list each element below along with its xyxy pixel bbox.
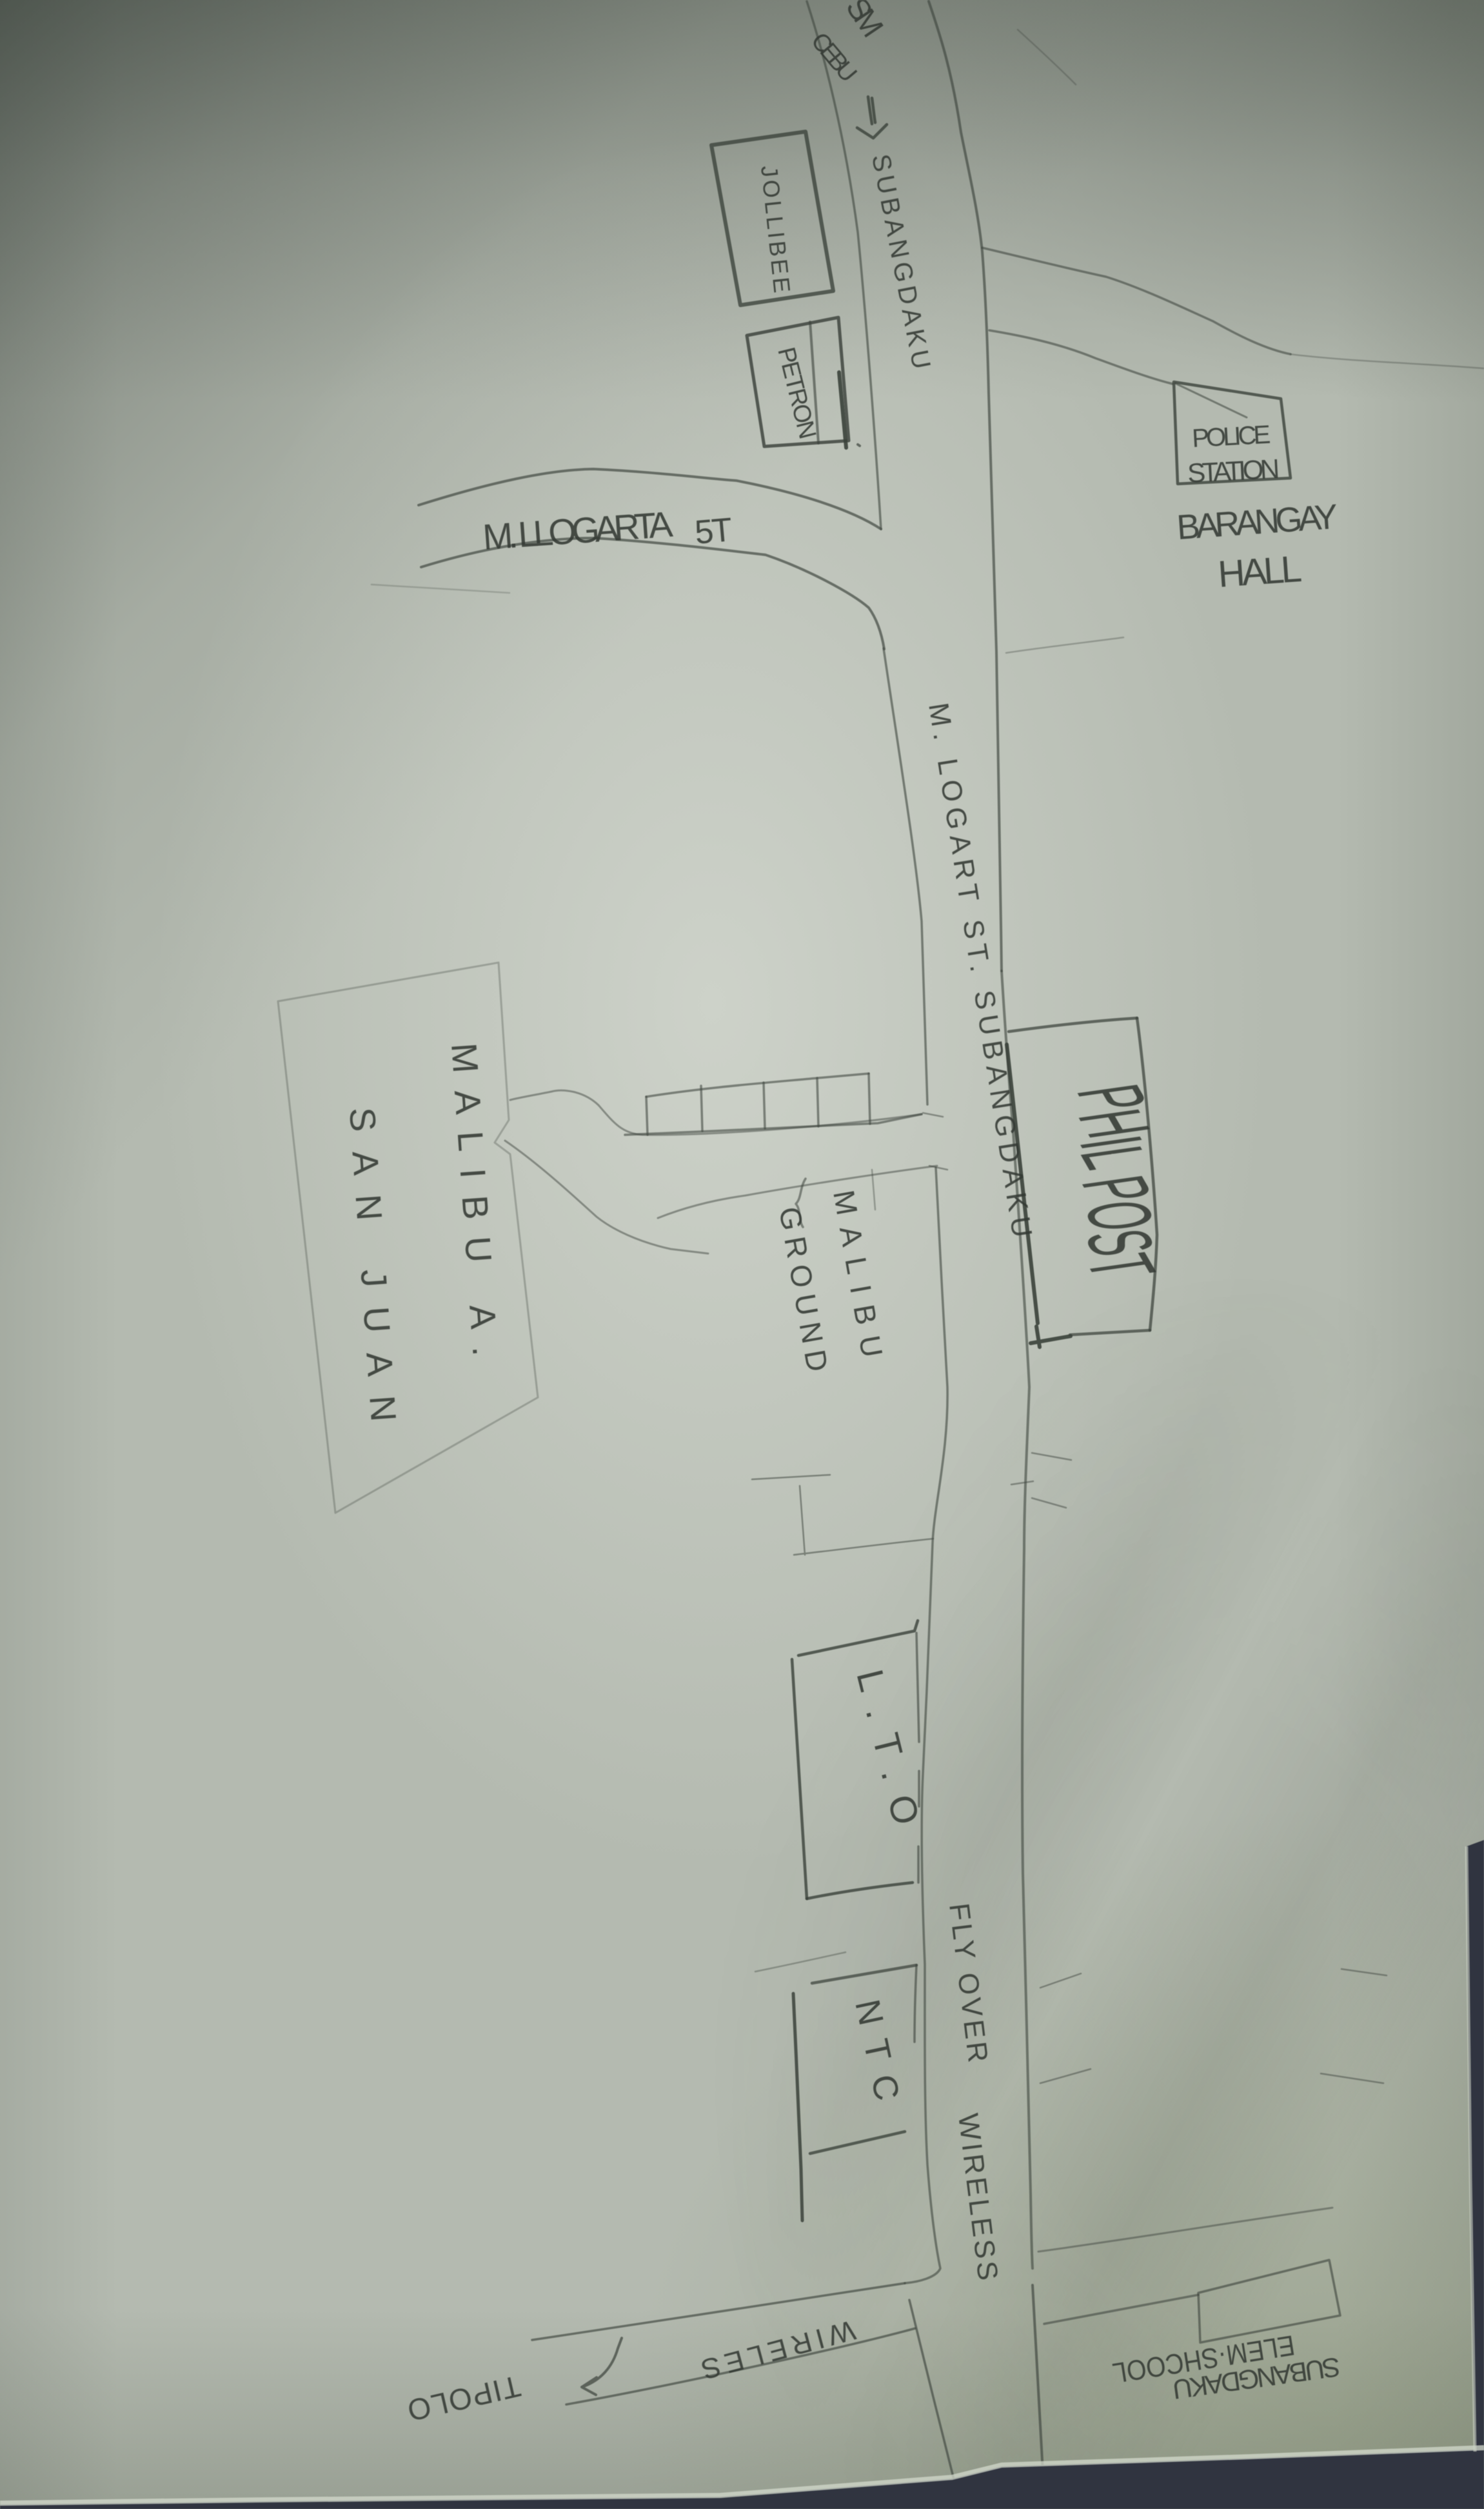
svg-text:MALIBU: MALIBU xyxy=(827,1188,889,1360)
svg-text:FLY OVER: FLY OVER xyxy=(943,1901,994,2064)
svg-text:WIRELESS: WIRELESS xyxy=(952,2112,1004,2282)
svg-text:PHIL POST: PHIL POST xyxy=(1056,1069,1170,1286)
svg-text:JOLLIBEE: JOLLIBEE xyxy=(756,165,795,294)
svg-text:WIRELES: WIRELES xyxy=(698,2314,858,2386)
svg-text:L.T.O: L.T.O xyxy=(848,1665,927,1828)
svg-text:GROUND: GROUND xyxy=(773,1205,835,1374)
svg-text:POLICE: POLICE xyxy=(1191,421,1271,453)
svg-text:CEBU: CEBU xyxy=(806,28,862,88)
svg-text:5T: 5T xyxy=(693,511,734,552)
svg-text:SUBANGDAKU: SUBANGDAKU xyxy=(866,152,936,371)
svg-text:BARANGAY: BARANGAY xyxy=(1176,497,1340,547)
svg-text:SM: SM xyxy=(839,0,890,44)
svg-text:NTC: NTC xyxy=(847,1996,907,2104)
svg-text:TIPOLO: TIPOLO xyxy=(404,2369,524,2428)
svg-text:HALL: HALL xyxy=(1216,548,1303,595)
svg-text:STATION: STATION xyxy=(1187,454,1280,488)
svg-text:M. LOGART ST. SUBANGDAKU: M. LOGART ST. SUBANGDAKU xyxy=(922,701,1038,1239)
svg-text:SAN JUAN: SAN JUAN xyxy=(342,1106,404,1423)
svg-text:MALIBU A.: MALIBU A. xyxy=(444,1041,506,1357)
svg-text:M. LLOGARTA: M. LLOGARTA xyxy=(481,504,674,557)
